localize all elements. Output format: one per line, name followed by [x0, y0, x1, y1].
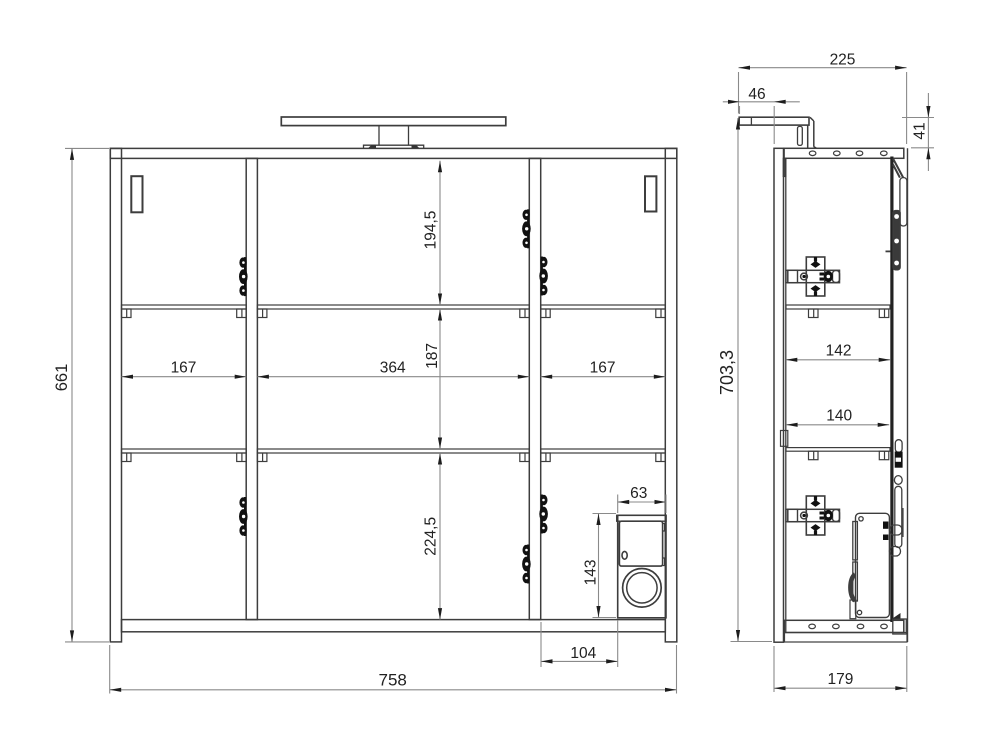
svg-text:179: 179 [827, 671, 853, 688]
svg-text:225: 225 [830, 51, 856, 68]
svg-text:703,3: 703,3 [717, 350, 737, 395]
svg-text:142: 142 [826, 343, 852, 360]
svg-text:41: 41 [911, 122, 928, 139]
svg-text:224,5: 224,5 [423, 517, 440, 556]
svg-text:187: 187 [424, 343, 441, 369]
svg-text:167: 167 [590, 360, 616, 377]
svg-text:46: 46 [748, 86, 765, 103]
svg-text:364: 364 [380, 360, 406, 377]
svg-text:194,5: 194,5 [423, 211, 440, 250]
svg-text:758: 758 [379, 671, 407, 690]
svg-text:104: 104 [570, 645, 596, 662]
svg-text:167: 167 [171, 360, 197, 377]
svg-text:143: 143 [582, 559, 599, 585]
svg-text:63: 63 [630, 485, 647, 502]
svg-text:140: 140 [826, 408, 852, 425]
svg-text:661: 661 [53, 364, 71, 392]
